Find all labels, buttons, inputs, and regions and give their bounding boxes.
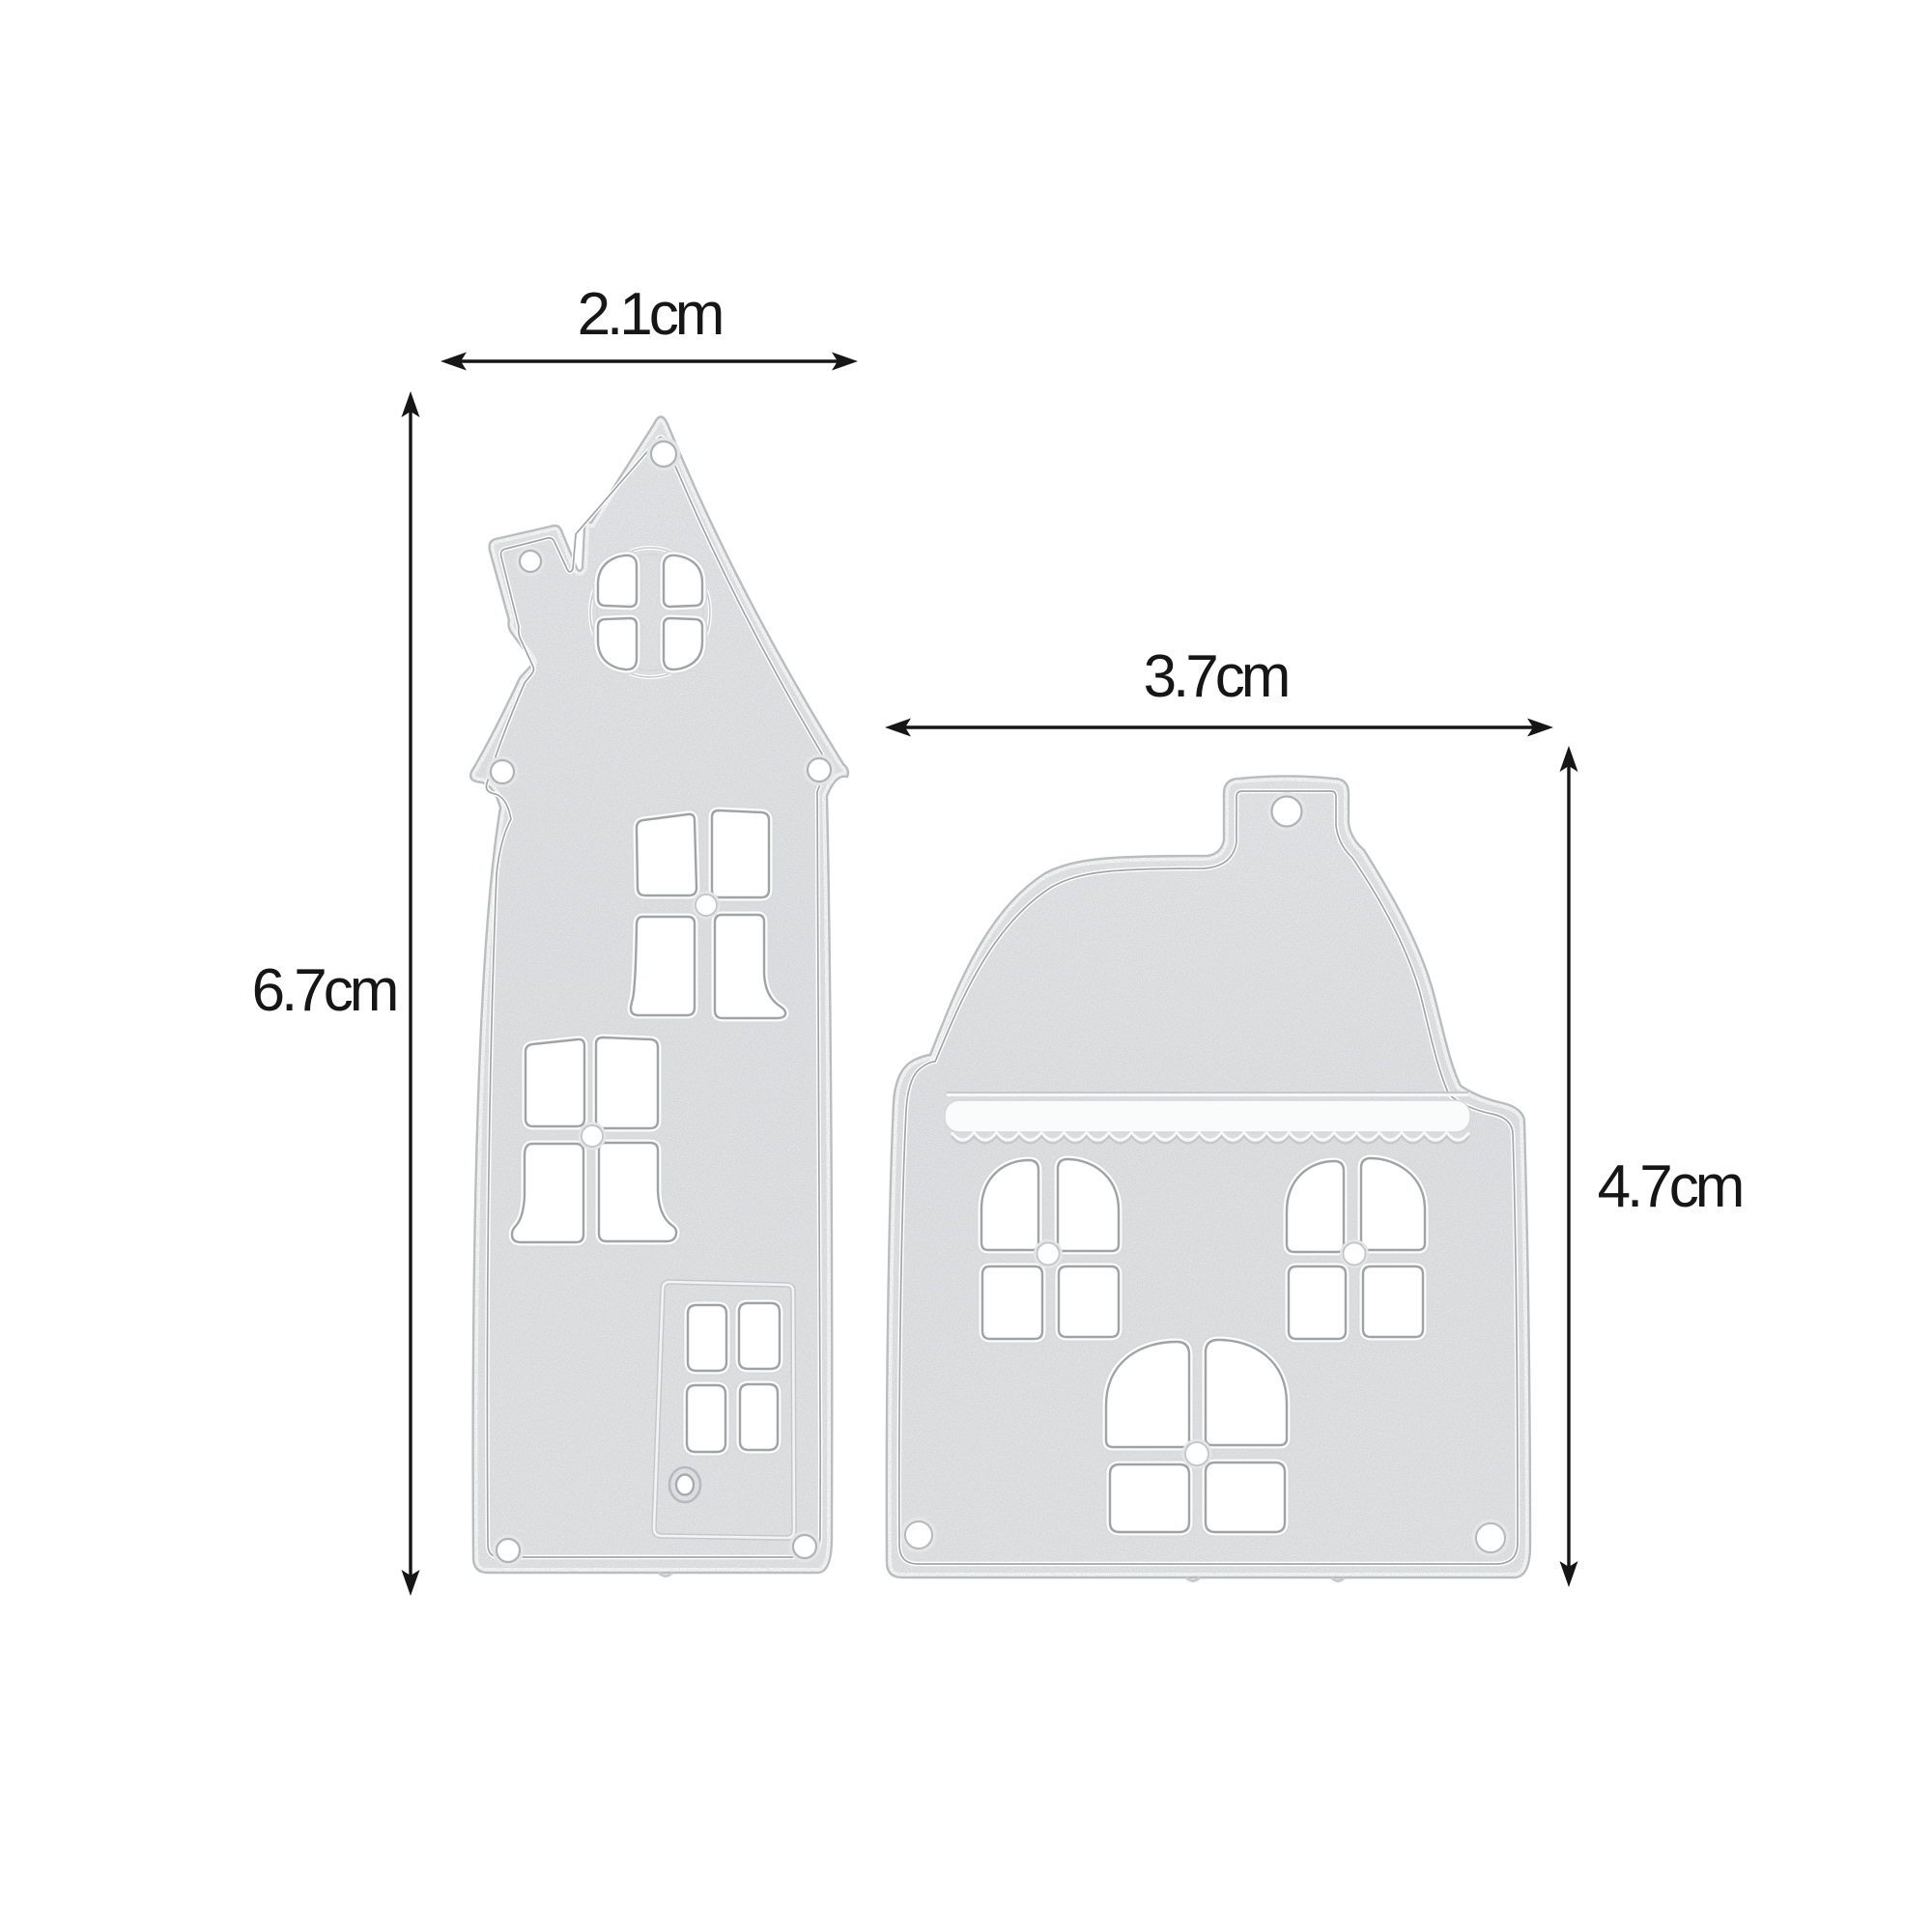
- svg-text:3.7cm: 3.7cm: [1144, 643, 1288, 710]
- svg-text:2.1cm: 2.1cm: [578, 281, 722, 348]
- svg-text:4.7cm: 4.7cm: [1598, 1153, 1742, 1220]
- svg-text:6.7cm: 6.7cm: [252, 957, 396, 1024]
